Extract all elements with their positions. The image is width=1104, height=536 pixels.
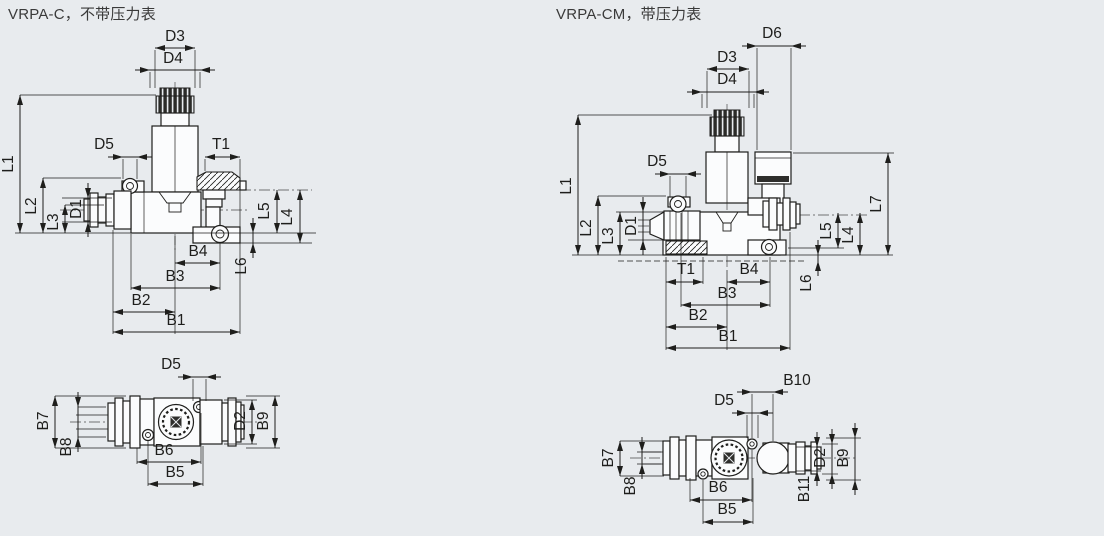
dim-label-t1: T1 — [212, 136, 230, 153]
dim-b1: B1 — [113, 312, 240, 335]
dim-label-d3: D3 — [165, 28, 185, 45]
dim-l5: L5 — [256, 190, 280, 233]
push-in-fitting-left — [84, 191, 131, 229]
outlet-swivel-fitting — [197, 172, 246, 227]
dim-label-b2r: B2 — [689, 307, 708, 324]
dim-label-l2: L2 — [23, 197, 40, 214]
dim-label-b2: B2 — [132, 292, 151, 309]
dim-d5b: D5 — [161, 356, 221, 401]
dim-b9r: B9 — [826, 423, 861, 495]
dim-b7r: B7 — [600, 441, 664, 476]
dim-label-b4: B4 — [189, 243, 208, 260]
screw-bottom-left — [143, 430, 154, 441]
dim-label-b9r: B9 — [835, 449, 852, 468]
dim-label-l3r: L3 — [600, 227, 617, 244]
dim-label-b10: B10 — [783, 372, 811, 389]
dim-label-b5r: B5 — [718, 501, 737, 518]
dim-b2r: B2 — [666, 307, 727, 330]
dim-label-d2r: D2 — [812, 448, 829, 468]
mounting-boss-bottom — [193, 226, 240, 244]
dim-d5: D5 — [94, 136, 152, 179]
dim-label-b7: B7 — [35, 412, 52, 431]
dim-label-d5r: D5 — [647, 153, 667, 170]
screw-top — [747, 439, 757, 449]
dim-b8r: B8 — [622, 437, 661, 495]
dim-label-d6: D6 — [762, 25, 782, 42]
dim-label-l2r: L2 — [578, 219, 595, 236]
dim-label-b3r: B3 — [718, 285, 737, 302]
dim-b8: B8 — [58, 392, 106, 456]
dim-label-b7r: B7 — [600, 449, 617, 468]
dim-b10: B10 — [737, 372, 811, 441]
dim-t1r: T1 — [666, 257, 703, 350]
valve-body — [131, 192, 201, 233]
mounting-screw-top — [668, 196, 690, 212]
adjusting-knob — [156, 88, 194, 126]
dim-label-d5b: D5 — [161, 356, 181, 373]
dim-label-d1r: D1 — [623, 216, 640, 236]
dim-label-l1r: L1 — [558, 177, 575, 194]
dim-label-l4r: L4 — [840, 226, 857, 244]
dim-d5r: D5 — [647, 153, 701, 197]
screw-bottom — [698, 469, 708, 479]
dim-label-b11: B11 — [796, 476, 813, 502]
technical-drawing-canvas: D3D4L1L2L3D1D5T1L5L4L6B4B3B2B1D5B7B8D2B9… — [0, 0, 1104, 536]
regulator-housing — [152, 126, 198, 192]
mounting-boss-bottom — [748, 240, 786, 256]
dim-label-d4: D4 — [163, 50, 183, 67]
dim-label-b6: B6 — [155, 442, 174, 459]
adjusting-knob — [710, 110, 744, 152]
dim-label-b8: B8 — [58, 438, 75, 457]
knob-circle — [711, 440, 747, 476]
dim-label-d5rb: D5 — [714, 392, 734, 409]
dim-label-b1r: B1 — [719, 328, 738, 345]
dim-label-b8r: B8 — [622, 477, 639, 496]
dim-label-l4: L4 — [279, 208, 296, 226]
dim-label-l7r: L7 — [868, 195, 885, 212]
dim-label-b5: B5 — [166, 464, 185, 481]
dim-label-d4r: D4 — [717, 71, 737, 88]
dim-label-t1r: T1 — [677, 261, 695, 278]
dim-label-b3: B3 — [166, 268, 185, 285]
dim-d5rb: D5 — [714, 392, 773, 438]
dim-l3r: L3 — [600, 212, 623, 255]
dim-l4r: L4 — [840, 213, 863, 255]
dim-label-d2b: D2 — [232, 411, 249, 431]
dim-label-d5: D5 — [94, 136, 114, 153]
dim-label-b4r: B4 — [740, 261, 759, 278]
knob-circle — [159, 405, 194, 440]
dim-label-d3r: D3 — [717, 49, 737, 66]
dim-label-l6: L6 — [233, 257, 250, 274]
dim-label-b9: B9 — [255, 412, 272, 431]
dim-label-b1: B1 — [167, 312, 186, 329]
threaded-port-left — [638, 211, 700, 240]
dim-label-l6r: L6 — [798, 274, 815, 291]
datasheet-dimensional-drawing: VRPA-C，不带压力表 VRPA-CM，带压力表 — [0, 0, 1104, 536]
push-in-fitting-right — [763, 198, 800, 230]
dim-label-l1: L1 — [0, 155, 17, 172]
dim-label-b6r: B6 — [709, 479, 728, 496]
dim-label-l3: L3 — [45, 213, 62, 230]
dim-d6: D6 — [742, 25, 806, 150]
dim-label-d1: D1 — [68, 199, 85, 219]
dim-label-l5: L5 — [256, 202, 273, 219]
dim-label-l5r: L5 — [818, 222, 835, 239]
regulator-housing — [706, 152, 748, 203]
pressure-gauge-circle — [757, 442, 789, 474]
